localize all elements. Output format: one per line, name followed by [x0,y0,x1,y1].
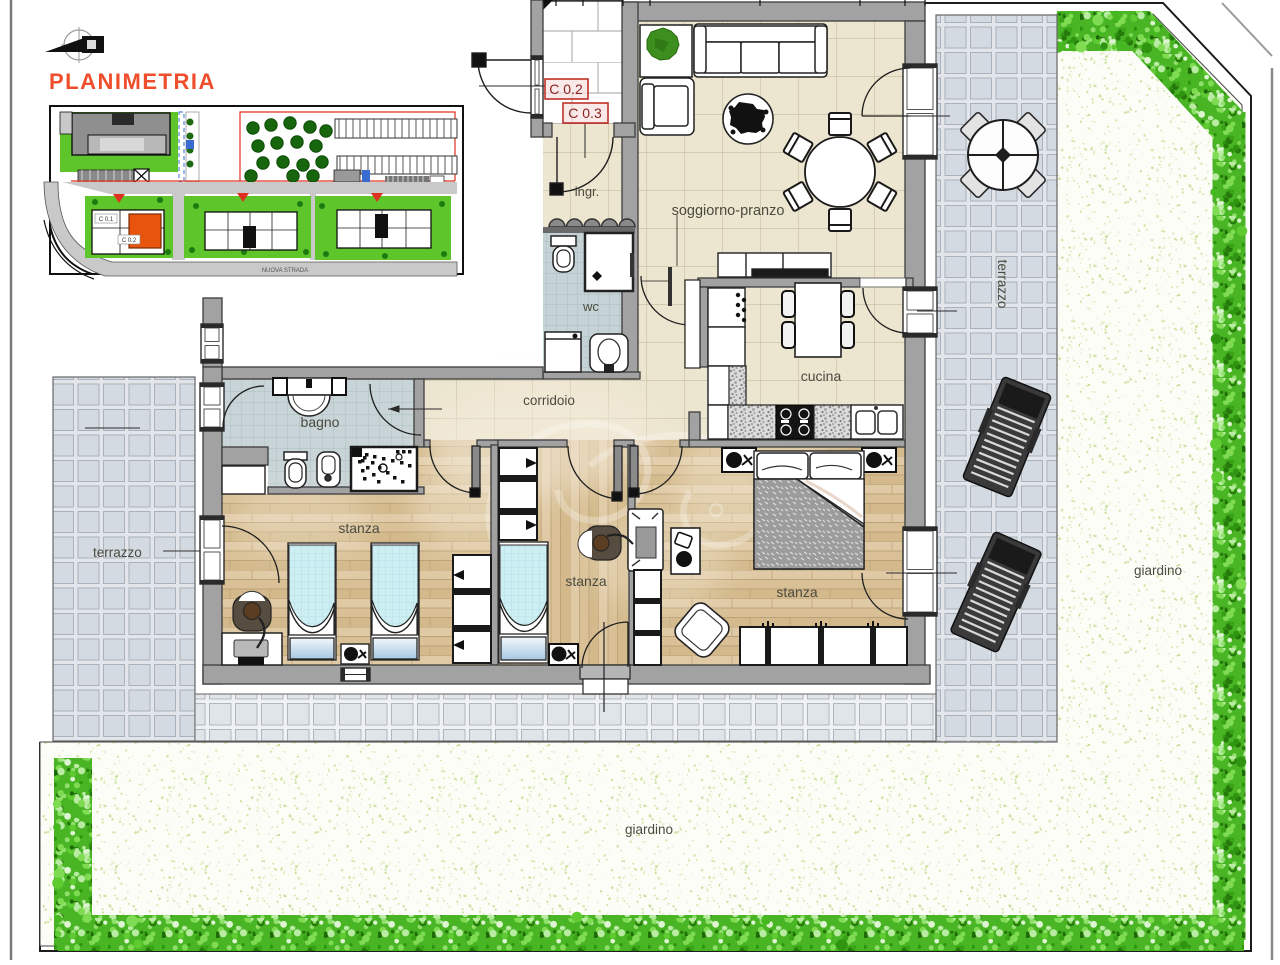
svg-text:soggiorno-pranzo: soggiorno-pranzo [672,203,785,219]
svg-text:wc: wc [582,299,599,314]
svg-text:corridoio: corridoio [523,393,575,408]
svg-text:bagno: bagno [301,414,340,430]
svg-text:C 0.2: C 0.2 [549,81,583,97]
svg-text:ingr.: ingr. [575,184,600,199]
svg-text:PLANIMETRIA: PLANIMETRIA [49,69,216,94]
svg-text:stanza: stanza [565,573,606,589]
svg-text:C 0.1: C 0.1 [99,217,114,223]
svg-text:stanza: stanza [776,584,817,600]
svg-text:C 0.3: C 0.3 [568,105,602,121]
svg-text:terrazzo: terrazzo [93,545,142,560]
svg-text:giardino: giardino [1134,563,1182,578]
svg-text:NUOVA STRADA: NUOVA STRADA [262,268,309,274]
svg-text:cucina: cucina [801,368,842,384]
svg-text:stanza: stanza [338,520,379,536]
svg-text:terrazzo: terrazzo [995,260,1010,309]
svg-text:C 0.2: C 0.2 [122,238,137,244]
svg-text:giardino: giardino [625,822,673,837]
